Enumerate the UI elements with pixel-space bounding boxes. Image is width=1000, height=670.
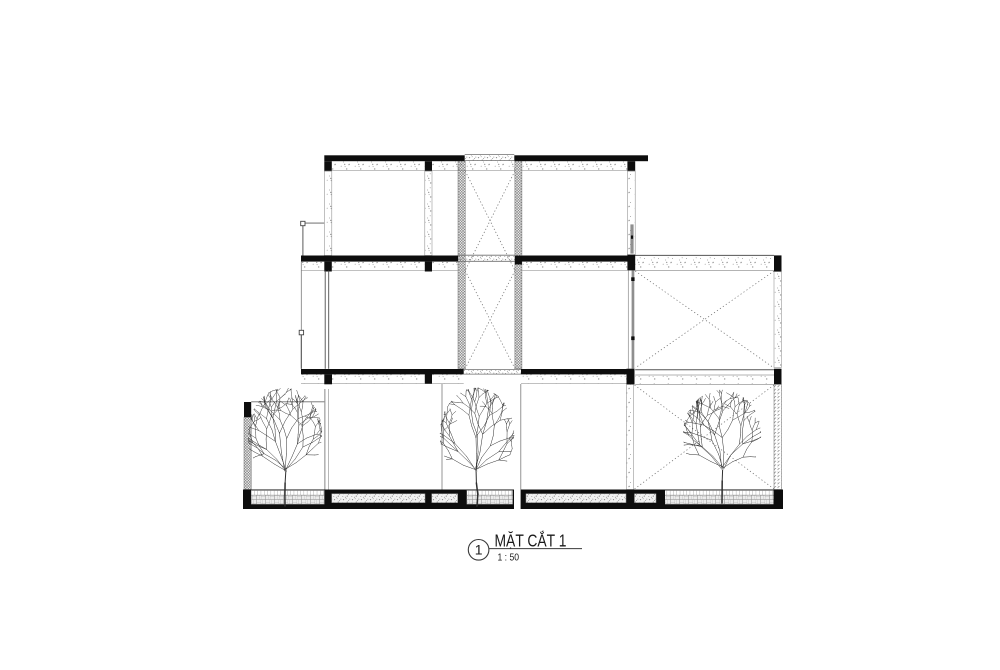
svg-text:1 : 50: 1 : 50 <box>498 552 520 564</box>
svg-text:MẶT CẮT 1: MẶT CẮT 1 <box>495 530 567 551</box>
svg-text:1: 1 <box>475 542 483 558</box>
